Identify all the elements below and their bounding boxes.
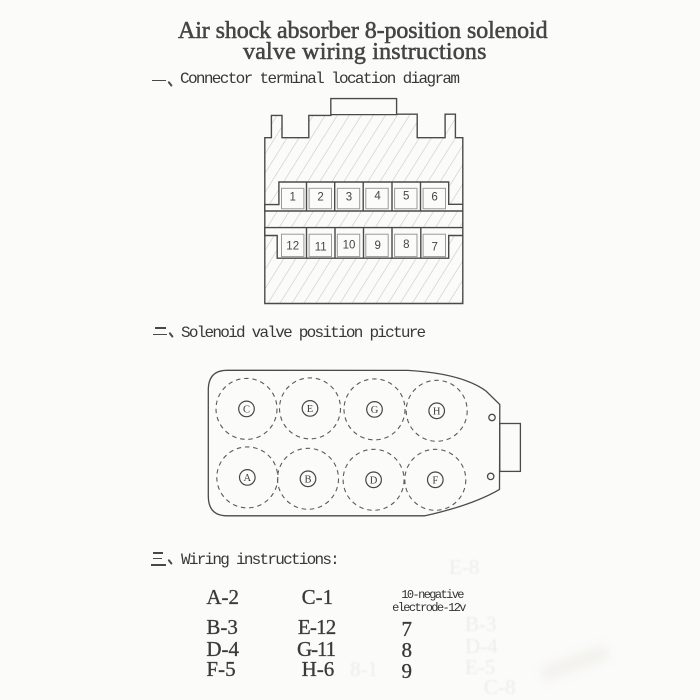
svg-text:B: B [304,475,311,486]
svg-text:3: 3 [346,192,352,204]
svg-text:8: 8 [403,239,409,251]
svg-text:12: 12 [286,241,299,253]
svg-text:A: A [244,473,252,484]
svg-text:H: H [433,407,441,418]
svg-text:11: 11 [315,242,327,254]
svg-text:C: C [243,405,250,416]
svg-text:7: 7 [431,242,437,254]
svg-text:2: 2 [317,192,323,204]
svg-text:E: E [307,404,313,415]
svg-text:5: 5 [403,190,409,202]
svg-text:10: 10 [343,240,356,252]
svg-text:G: G [371,405,379,416]
svg-text:9: 9 [374,240,380,252]
svg-text:D: D [370,476,378,487]
svg-text:F: F [432,476,438,487]
svg-text:4: 4 [374,190,381,202]
svg-text:6: 6 [431,192,437,204]
svg-text:1: 1 [289,192,295,204]
